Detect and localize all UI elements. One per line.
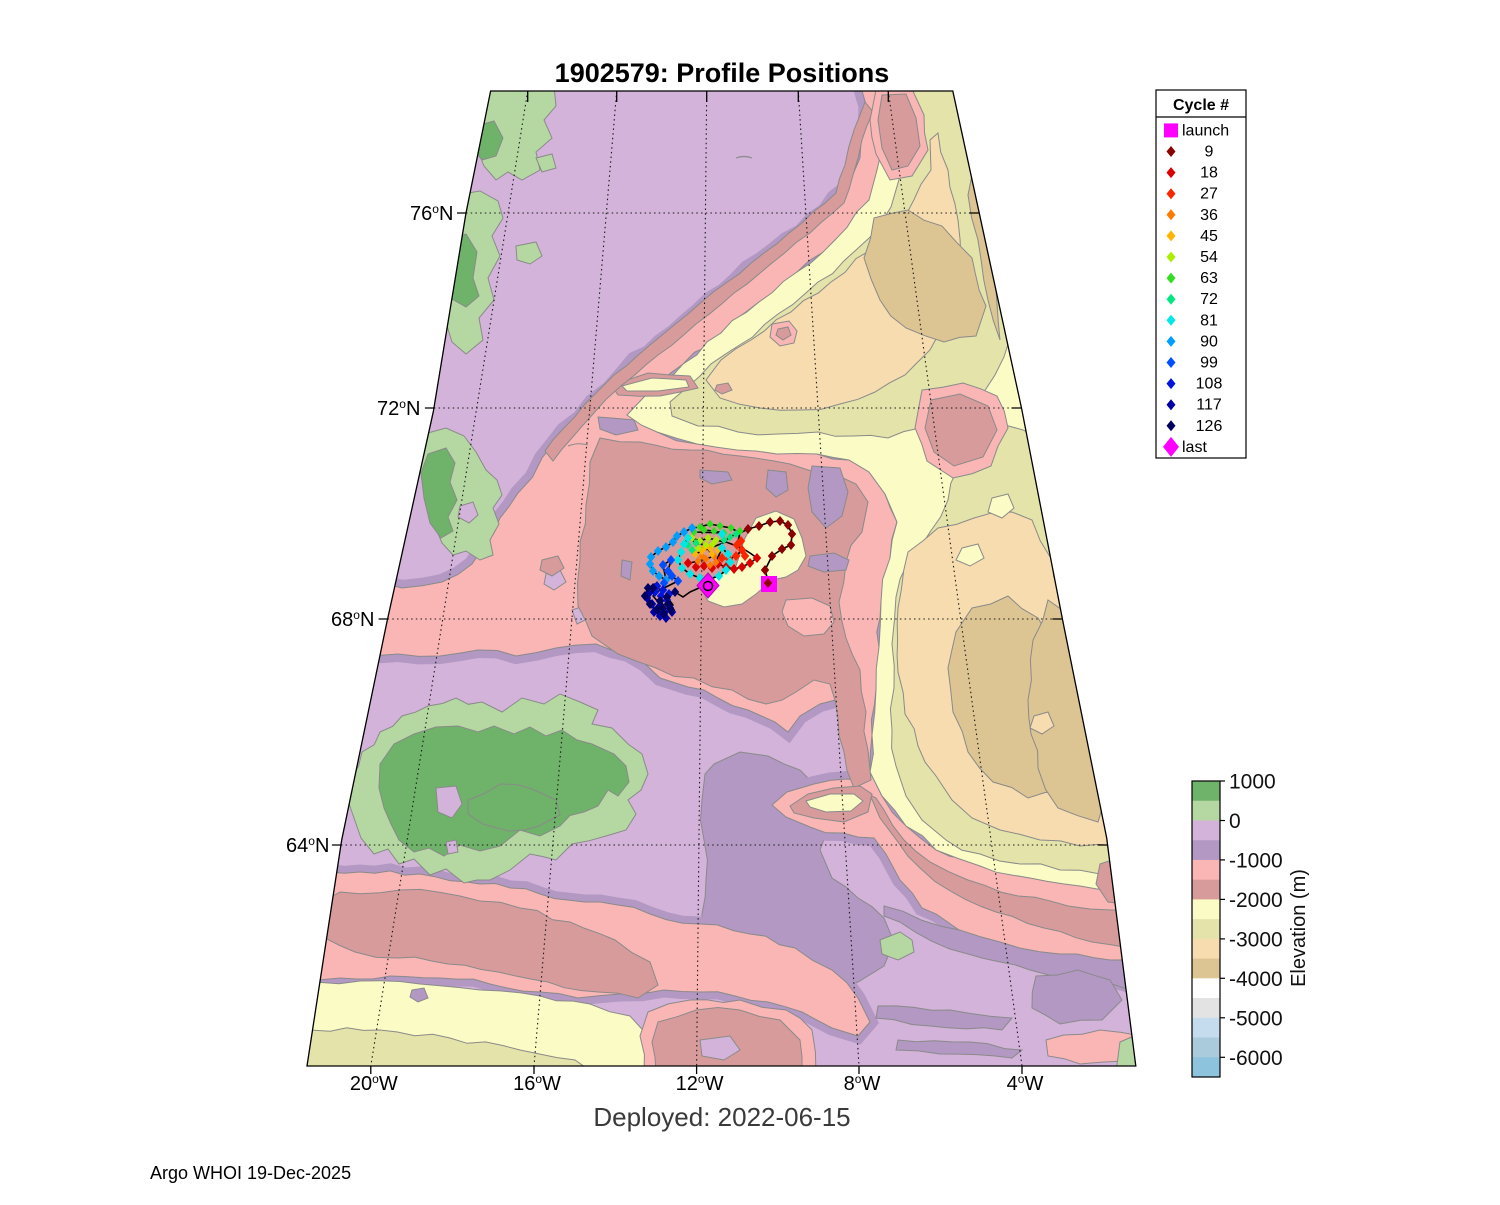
svg-text:0: 0 [1229, 810, 1241, 833]
svg-text:Elevation (m): Elevation (m) [1288, 869, 1310, 987]
svg-text:36: 36 [1200, 207, 1218, 224]
svg-text:Deployed: 2022-06-15: Deployed: 2022-06-15 [593, 1102, 850, 1132]
svg-text:9: 9 [1205, 144, 1214, 161]
svg-text:18: 18 [1200, 165, 1218, 182]
svg-text:45: 45 [1200, 228, 1218, 245]
svg-text:63: 63 [1200, 270, 1218, 287]
svg-text:4oW: 4oW [1007, 1072, 1044, 1095]
svg-text:1000: 1000 [1229, 771, 1276, 794]
svg-text:27: 27 [1200, 186, 1218, 203]
svg-text:-3000: -3000 [1229, 928, 1283, 951]
svg-text:64oN: 64oN [286, 834, 329, 857]
svg-text:-4000: -4000 [1229, 968, 1283, 991]
svg-text:99: 99 [1200, 355, 1218, 372]
svg-text:108: 108 [1196, 376, 1223, 393]
svg-text:-6000: -6000 [1229, 1047, 1283, 1070]
svg-text:126: 126 [1196, 418, 1223, 435]
svg-text:81: 81 [1200, 312, 1218, 329]
svg-text:72: 72 [1200, 291, 1218, 308]
svg-text:-5000: -5000 [1229, 1007, 1283, 1030]
svg-text:launch: launch [1182, 122, 1229, 139]
svg-text:8oW: 8oW [844, 1072, 881, 1095]
svg-text:-2000: -2000 [1229, 889, 1283, 912]
svg-text:76oN: 76oN [410, 202, 453, 225]
svg-text:68oN: 68oN [331, 608, 374, 631]
svg-text:1902579: Profile Positions: 1902579: Profile Positions [555, 58, 890, 88]
svg-text:last: last [1182, 439, 1207, 456]
svg-text:Cycle #: Cycle # [1173, 97, 1229, 114]
svg-text:-1000: -1000 [1229, 849, 1283, 872]
svg-text:54: 54 [1200, 249, 1218, 266]
svg-text:117: 117 [1196, 397, 1222, 414]
svg-text:72oN: 72oN [377, 397, 420, 420]
svg-text:Argo WHOI 19-Dec-2025: Argo WHOI 19-Dec-2025 [150, 1163, 351, 1183]
svg-text:90: 90 [1200, 333, 1218, 350]
